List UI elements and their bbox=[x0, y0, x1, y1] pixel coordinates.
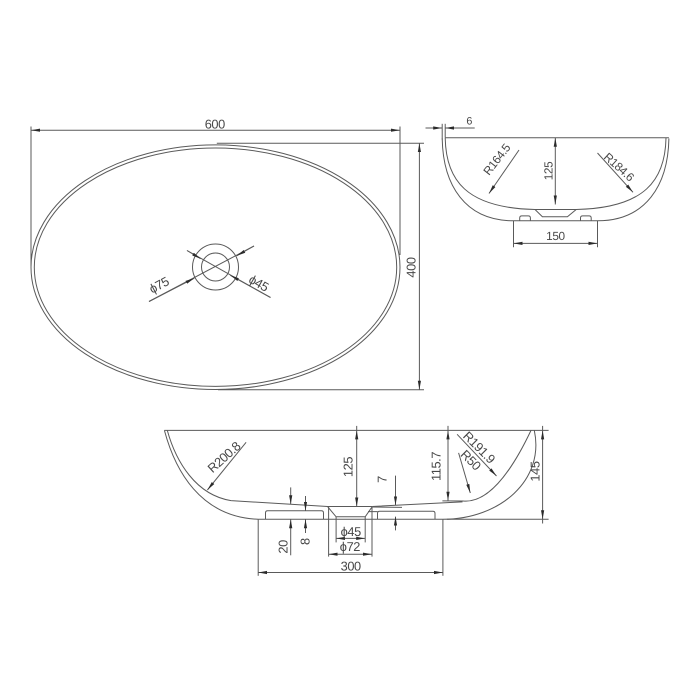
svg-text:600: 600 bbox=[205, 117, 225, 132]
svg-text:20: 20 bbox=[276, 540, 291, 554]
svg-text:ϕ45: ϕ45 bbox=[341, 524, 361, 539]
svg-text:ϕ75: ϕ75 bbox=[146, 274, 171, 297]
svg-text:6: 6 bbox=[466, 116, 472, 128]
svg-text:R184.6: R184.6 bbox=[601, 150, 637, 185]
svg-text:8: 8 bbox=[298, 538, 313, 545]
svg-text:ϕ45: ϕ45 bbox=[246, 272, 271, 295]
svg-text:300: 300 bbox=[341, 558, 361, 573]
svg-text:125: 125 bbox=[542, 161, 556, 180]
svg-text:400: 400 bbox=[404, 257, 419, 277]
svg-text:150: 150 bbox=[546, 229, 565, 243]
svg-text:145: 145 bbox=[528, 461, 543, 481]
svg-text:ϕ72: ϕ72 bbox=[340, 539, 360, 554]
svg-text:R164.5: R164.5 bbox=[480, 140, 513, 177]
svg-text:115.7: 115.7 bbox=[429, 452, 444, 481]
svg-text:125: 125 bbox=[341, 457, 356, 477]
svg-text:7: 7 bbox=[375, 476, 390, 483]
